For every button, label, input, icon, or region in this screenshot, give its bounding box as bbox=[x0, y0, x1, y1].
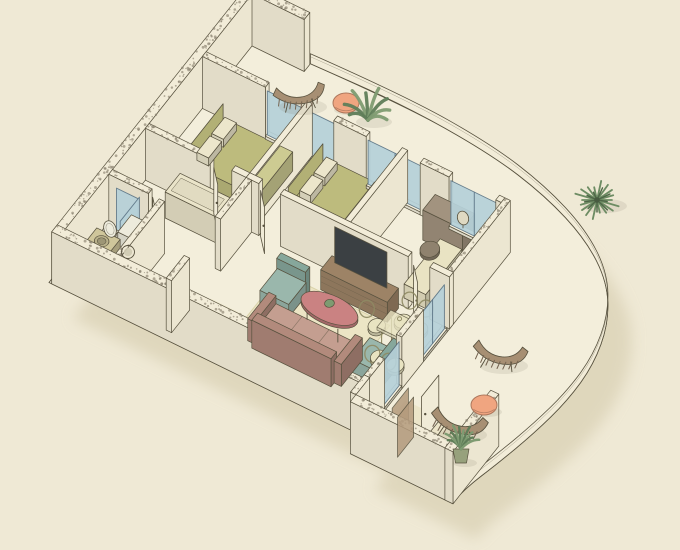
scene-root bbox=[0, 0, 680, 550]
floorplan-illustration: Isometric cutaway floor plan of an apart… bbox=[0, 0, 680, 550]
isometric-floorplan-svg: Isometric cutaway floor plan of an apart… bbox=[0, 0, 680, 550]
